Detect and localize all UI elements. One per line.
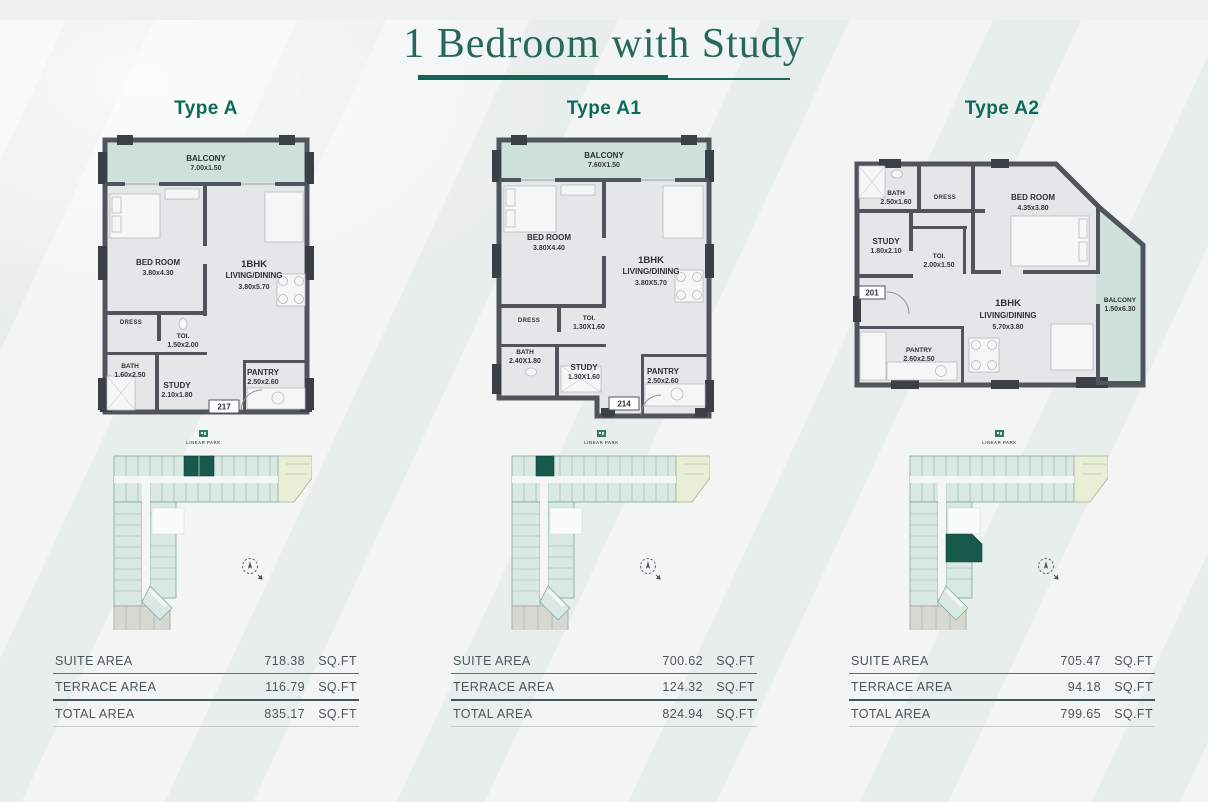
balcony-label: BALCONY — [584, 151, 624, 160]
floor-plan-type-a: BALCONY 7.00x1.50 BED ROOM 3.80x4.30 1BH… — [97, 128, 315, 420]
suite-area-unit: SQ.FT — [713, 654, 755, 668]
terrace-area-label: TERRACE AREA — [55, 680, 156, 694]
terrace-area-unit: SQ.FT — [315, 680, 357, 694]
living-label-1: 1BHK — [638, 255, 664, 266]
bath-dim: 2.50x1.60 — [880, 199, 911, 206]
study-dim: 2.10x1.80 — [161, 392, 192, 399]
bath-label: BATH — [121, 363, 139, 370]
key-plan-type-a2: LINEAR PARK — [896, 428, 1108, 630]
door-gap — [1001, 270, 1023, 274]
dress-label: DRESS — [120, 320, 142, 326]
terrace-area-row: TERRACE AREA 116.79 SQ.FT — [53, 674, 359, 701]
total-area-value: 824.94 — [533, 707, 704, 721]
bath-label: BATH — [516, 349, 534, 356]
column-type-a2: Type A2 — [806, 92, 1198, 727]
unit-number: 214 — [617, 400, 631, 409]
bedroom-dim: 3.80x4.30 — [142, 270, 173, 277]
area-table-type-a1: SUITE AREA 700.62 SQ.FT TERRACE AREA 124… — [451, 648, 757, 727]
unit-number: 201 — [865, 288, 879, 297]
toilet-label: TOI. — [583, 315, 596, 322]
type-a2-heading: Type A2 — [965, 98, 1040, 120]
type-a-heading: Type A — [174, 98, 238, 120]
key-plan-type-a1: LINEAR PARK — [498, 428, 710, 630]
total-area-value: 799.65 — [931, 707, 1102, 721]
bedroom-label: BED ROOM — [136, 258, 180, 267]
suite-area-row: SUITE AREA 718.38 SQ.FT — [53, 648, 359, 674]
bedroom-dim: 4.35x3.80 — [1017, 205, 1048, 212]
dress-label: DRESS — [518, 318, 540, 324]
terrace-area-value: 124.32 — [554, 680, 703, 694]
terrace-area-row: TERRACE AREA 94.18 SQ.FT — [849, 674, 1155, 701]
total-area-label: TOTAL AREA — [453, 707, 533, 721]
compass-icon — [1039, 559, 1059, 580]
unit-number-tag: 201 — [859, 286, 885, 299]
bedroom-label: BED ROOM — [1011, 193, 1055, 202]
total-area-unit: SQ.FT — [315, 707, 357, 721]
bath-label: BATH — [887, 190, 905, 197]
suite-area-label: SUITE AREA — [55, 654, 133, 668]
building-footprint — [512, 456, 710, 630]
terrace-area-value: 94.18 — [952, 680, 1101, 694]
bedroom-dim: 3.80X4.40 — [533, 245, 565, 252]
linear-park-logo: LINEAR PARK — [982, 430, 1017, 445]
toilet-label: TOI. — [177, 333, 190, 340]
balcony-dim: 7.00x1.50 — [190, 165, 221, 172]
toilet-dim: 1.30X1.60 — [573, 324, 605, 331]
suite-area-row: SUITE AREA 705.47 SQ.FT — [849, 648, 1155, 674]
keyplan-brand-label: LINEAR PARK — [186, 440, 221, 445]
bath-dim: 1.60x2.50 — [114, 372, 145, 379]
bedroom-label: BED ROOM — [527, 233, 571, 242]
balcony-dim: 1.50x6.30 — [1104, 306, 1135, 313]
total-area-label: TOTAL AREA — [55, 707, 135, 721]
highlighted-unit — [536, 456, 554, 476]
living-dim: 3.80x5.70 — [238, 284, 269, 291]
building-footprint — [910, 456, 1108, 630]
total-area-unit: SQ.FT — [1111, 707, 1153, 721]
terrace-area-value: 116.79 — [156, 680, 305, 694]
total-area-row: TOTAL AREA 824.94 SQ.FT — [451, 701, 757, 727]
column-type-a: Type A — [10, 92, 402, 727]
suite-area-value: 705.47 — [929, 654, 1101, 668]
terrace-area-label: TERRACE AREA — [851, 680, 952, 694]
unit-number-tag: 217 — [209, 400, 239, 413]
floor-plan-type-a2: BATH 2.50x1.60 DRESS BED ROOM 4.35x3.80 … — [851, 156, 1153, 393]
brochure-page: 1 Bedroom with Study Type A — [0, 20, 1208, 727]
linear-park-logo: LINEAR PARK — [186, 430, 221, 445]
pantry-label: PANTRY — [906, 347, 933, 354]
study-label: STUDY — [163, 381, 191, 390]
total-area-value: 835.17 — [135, 707, 306, 721]
balcony-label: BALCONY — [1104, 297, 1137, 304]
total-area-row: TOTAL AREA 835.17 SQ.FT — [53, 701, 359, 727]
keyplan-brand-label: LINEAR PARK — [982, 440, 1017, 445]
bath-dim: 2.40X1.80 — [509, 358, 541, 365]
total-area-unit: SQ.FT — [713, 707, 755, 721]
unit-number: 217 — [217, 403, 231, 412]
living-label-2: LIVING/DINING — [623, 267, 680, 276]
keyplan-brand-label: LINEAR PARK — [584, 440, 619, 445]
suite-area-value: 700.62 — [531, 654, 703, 668]
living-label-1: 1BHK — [241, 259, 267, 270]
living-label-1: 1BHK — [995, 298, 1021, 309]
area-table-type-a: SUITE AREA 718.38 SQ.FT TERRACE AREA 116… — [53, 648, 359, 727]
pantry-dim: 2.60x2.50 — [903, 356, 934, 363]
unit-columns: Type A — [0, 92, 1208, 727]
study-label: STUDY — [872, 237, 900, 246]
living-dim: 5.70x3.80 — [992, 324, 1023, 331]
terrace-area-row: TERRACE AREA 124.32 SQ.FT — [451, 674, 757, 701]
study-dim: 1.30X1.60 — [568, 374, 600, 381]
total-area-row: TOTAL AREA 799.65 SQ.FT — [849, 701, 1155, 727]
terrace-area-unit: SQ.FT — [1111, 680, 1153, 694]
pantry-label: PANTRY — [247, 368, 280, 377]
study-dim: 1.80x2.10 — [870, 248, 901, 255]
pantry-dim: 2.50x2.60 — [647, 378, 678, 385]
key-plan-type-a: LINEAR PARK — [100, 428, 312, 630]
suite-area-label: SUITE AREA — [453, 654, 531, 668]
suite-area-value: 718.38 — [133, 654, 305, 668]
terrace-area-label: TERRACE AREA — [453, 680, 554, 694]
building-footprint — [114, 456, 312, 630]
living-label-2: LIVING/DINING — [226, 271, 283, 280]
floor-plan-type-a1: BALCONY 7.60X1.50 BED ROOM 3.80X4.40 1BH… — [491, 128, 717, 420]
suite-area-row: SUITE AREA 700.62 SQ.FT — [451, 648, 757, 674]
suite-area-unit: SQ.FT — [1111, 654, 1153, 668]
compass-icon — [243, 559, 263, 580]
column-type-a1: Type A1 — [408, 92, 800, 727]
type-a1-heading: Type A1 — [567, 98, 642, 120]
pantry-dim: 2.50x2.60 — [247, 379, 278, 386]
terrace-area-unit: SQ.FT — [713, 680, 755, 694]
balcony-label: BALCONY — [186, 154, 226, 163]
suite-area-unit: SQ.FT — [315, 654, 357, 668]
dress-label: DRESS — [934, 195, 956, 201]
title-underline — [418, 75, 790, 80]
compass-icon — [641, 559, 661, 580]
unit-number-tag: 214 — [609, 397, 639, 410]
total-area-label: TOTAL AREA — [851, 707, 931, 721]
study-label: STUDY — [570, 363, 598, 372]
suite-area-label: SUITE AREA — [851, 654, 929, 668]
page-title: 1 Bedroom with Study — [0, 20, 1208, 68]
balcony-dim: 7.60X1.50 — [588, 162, 620, 169]
highlighted-unit — [946, 534, 982, 562]
living-label-2: LIVING/DINING — [980, 311, 1037, 320]
toilet-label: TOI. — [933, 253, 946, 260]
living-dim: 3.80X5.70 — [635, 280, 667, 287]
area-table-type-a2: SUITE AREA 705.47 SQ.FT TERRACE AREA 94.… — [849, 648, 1155, 727]
linear-park-logo: LINEAR PARK — [584, 430, 619, 445]
pantry-label: PANTRY — [647, 367, 680, 376]
toilet-dim: 2.00x1.50 — [923, 262, 954, 269]
toilet-dim: 1.50x2.00 — [167, 342, 198, 349]
